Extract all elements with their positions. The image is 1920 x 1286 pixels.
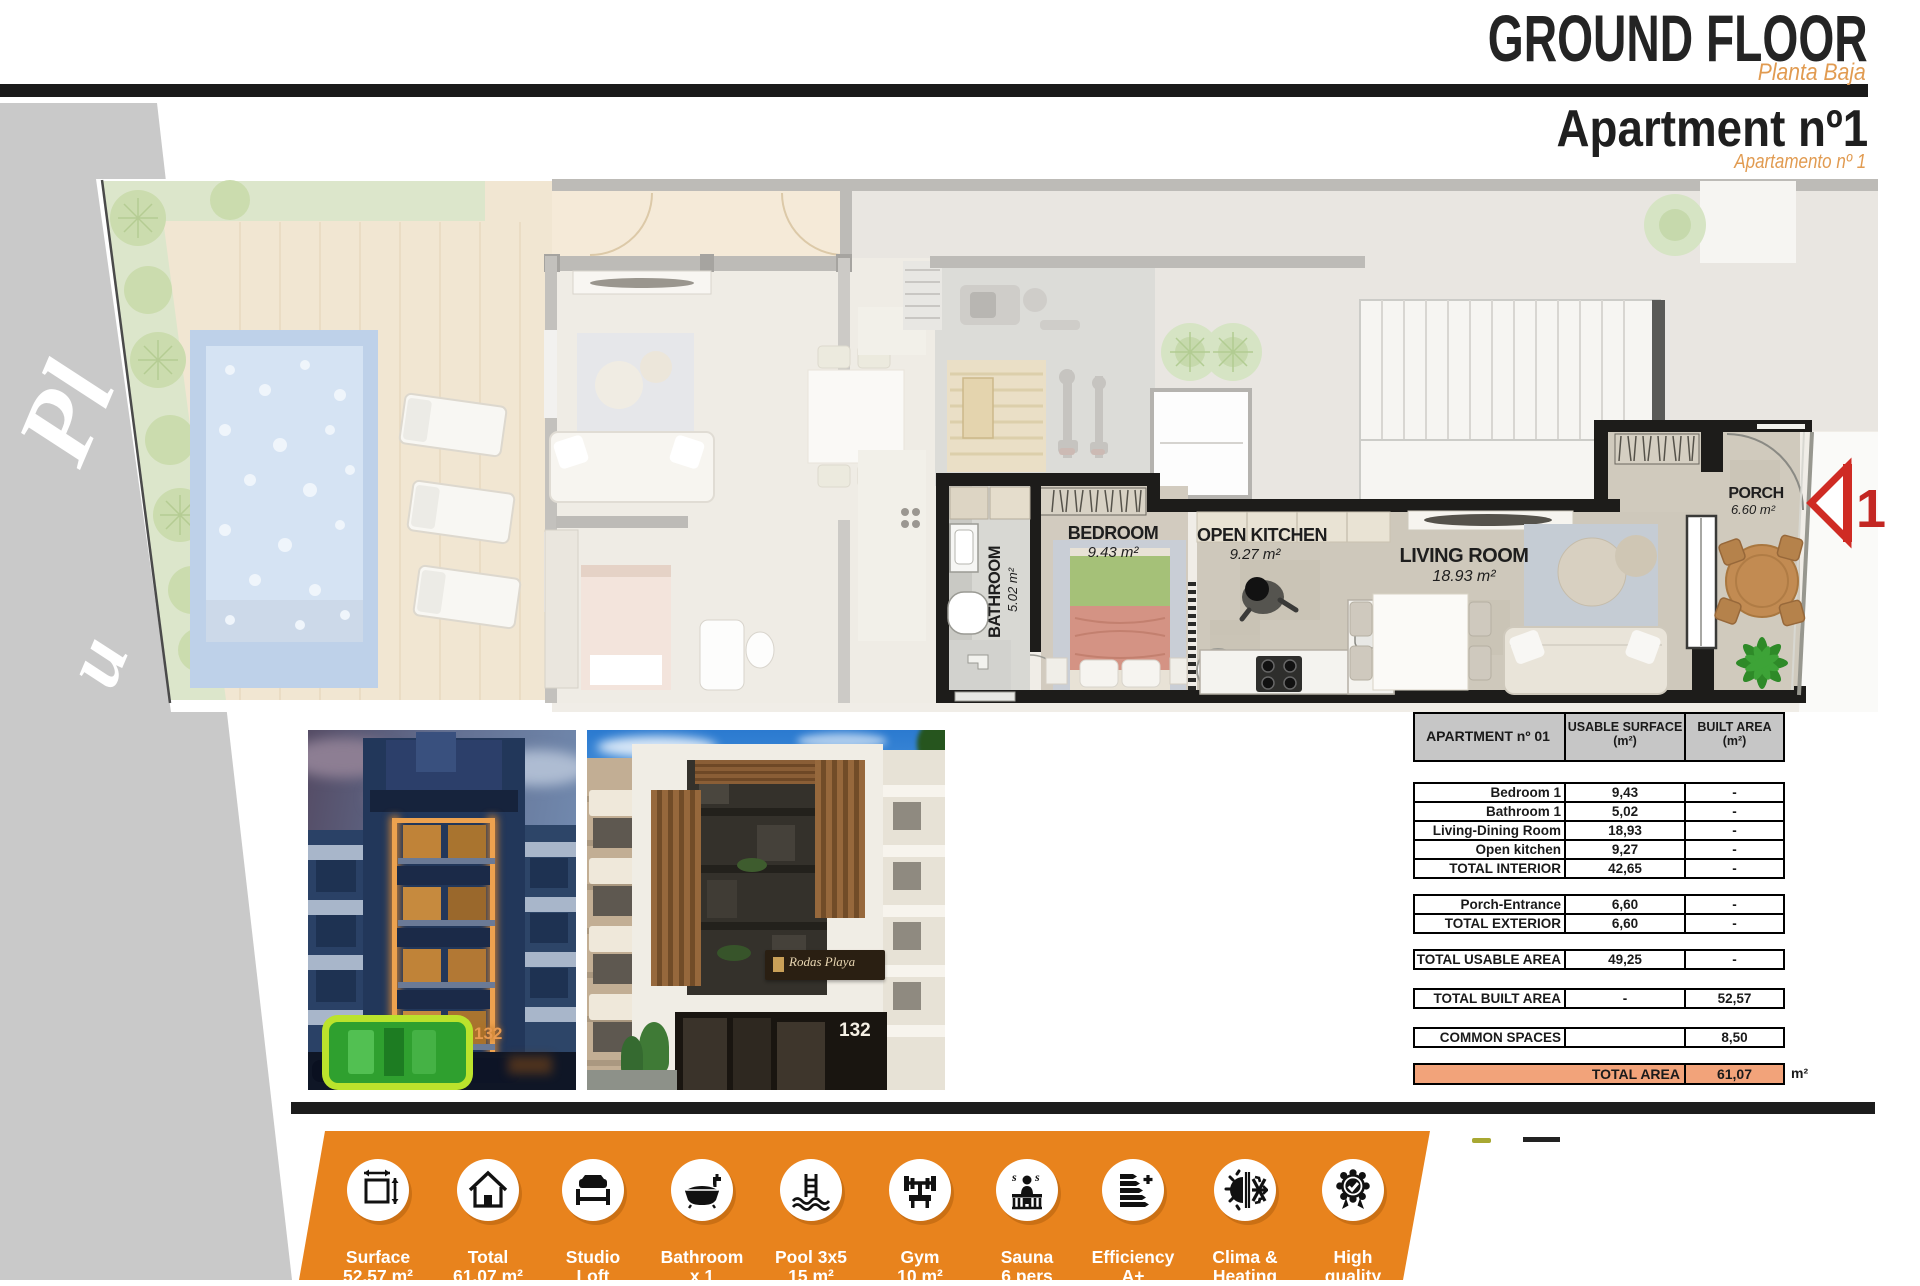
svg-text:18.93 m²: 18.93 m² [1432,568,1496,585]
svg-text:9.27 m²: 9.27 m² [1230,546,1282,563]
svg-text:BATHROOM: BATHROOM [986,546,1004,638]
svg-text:BEDROOM: BEDROOM [1068,523,1159,543]
svg-text:1: 1 [1856,479,1886,539]
svg-text:9.43 m²: 9.43 m² [1088,544,1140,561]
svg-text:5.02 m²: 5.02 m² [1005,567,1020,612]
svg-text:PORCH: PORCH [1728,485,1783,502]
svg-text:6.60 m²: 6.60 m² [1731,502,1776,517]
svg-text:s: s [1011,1170,1017,1184]
svg-text:OPEN KITCHEN: OPEN KITCHEN [1197,525,1327,545]
svg-text:s: s [1034,1170,1040,1184]
svg-text:LIVING ROOM: LIVING ROOM [1400,545,1529,567]
